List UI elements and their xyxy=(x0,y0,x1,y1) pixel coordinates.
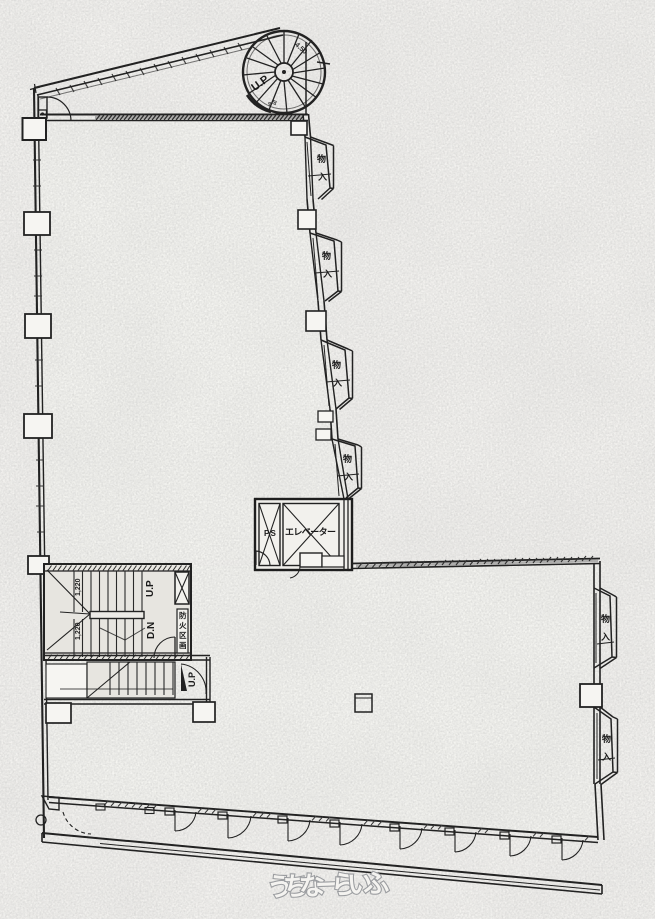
svg-text:入: 入 xyxy=(601,752,611,762)
svg-text:U.P: U.P xyxy=(145,580,156,597)
svg-text:物: 物 xyxy=(332,359,341,370)
svg-text:U.P: U.P xyxy=(187,672,197,687)
svg-text:物: 物 xyxy=(322,250,331,261)
svg-text:入: 入 xyxy=(343,472,353,482)
svg-text:1,220: 1,220 xyxy=(75,578,82,596)
svg-text:P.S: P.S xyxy=(264,529,277,538)
svg-text:D.N: D.N xyxy=(146,622,157,639)
svg-text:入: 入 xyxy=(332,378,342,388)
svg-text:物: 物 xyxy=(317,153,326,164)
svg-text:入: 入 xyxy=(317,172,327,182)
svg-text:エレベーター: エレベーター xyxy=(285,526,336,537)
svg-text:うちなーらいふ: うちなーらいふ xyxy=(267,868,390,902)
svg-text:1,220: 1,220 xyxy=(75,622,82,640)
svg-text:物: 物 xyxy=(602,733,611,744)
svg-text:入: 入 xyxy=(600,632,610,642)
svg-text:物: 物 xyxy=(343,453,352,464)
svg-text:物: 物 xyxy=(601,613,610,624)
svg-text:入: 入 xyxy=(322,269,332,279)
